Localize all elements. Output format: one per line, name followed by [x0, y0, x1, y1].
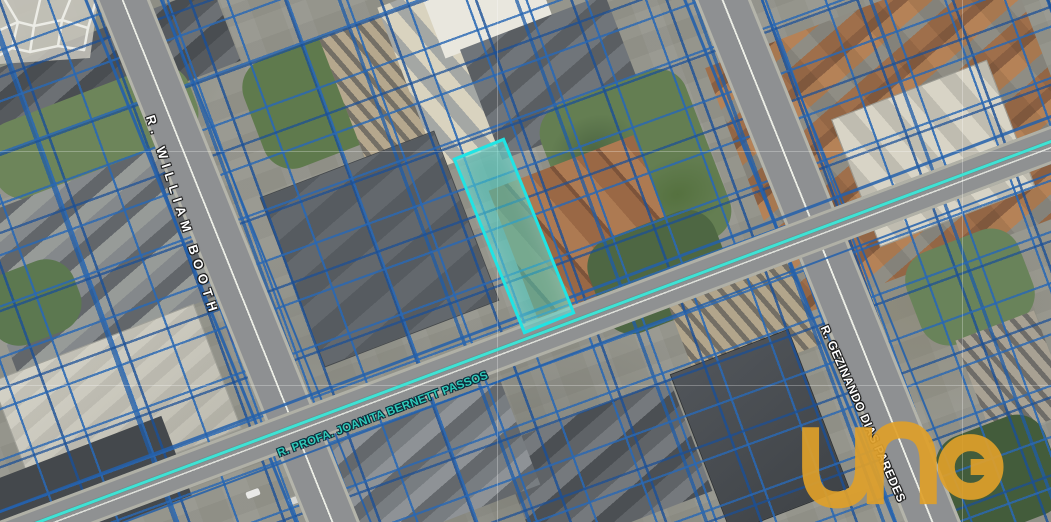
roof-pattern: [0, 0, 100, 72]
map-canvas[interactable]: R. WILLIAM BOOTH R. PROFA. JOANITA BERNE…: [0, 0, 1051, 522]
vehicle: [245, 488, 261, 500]
